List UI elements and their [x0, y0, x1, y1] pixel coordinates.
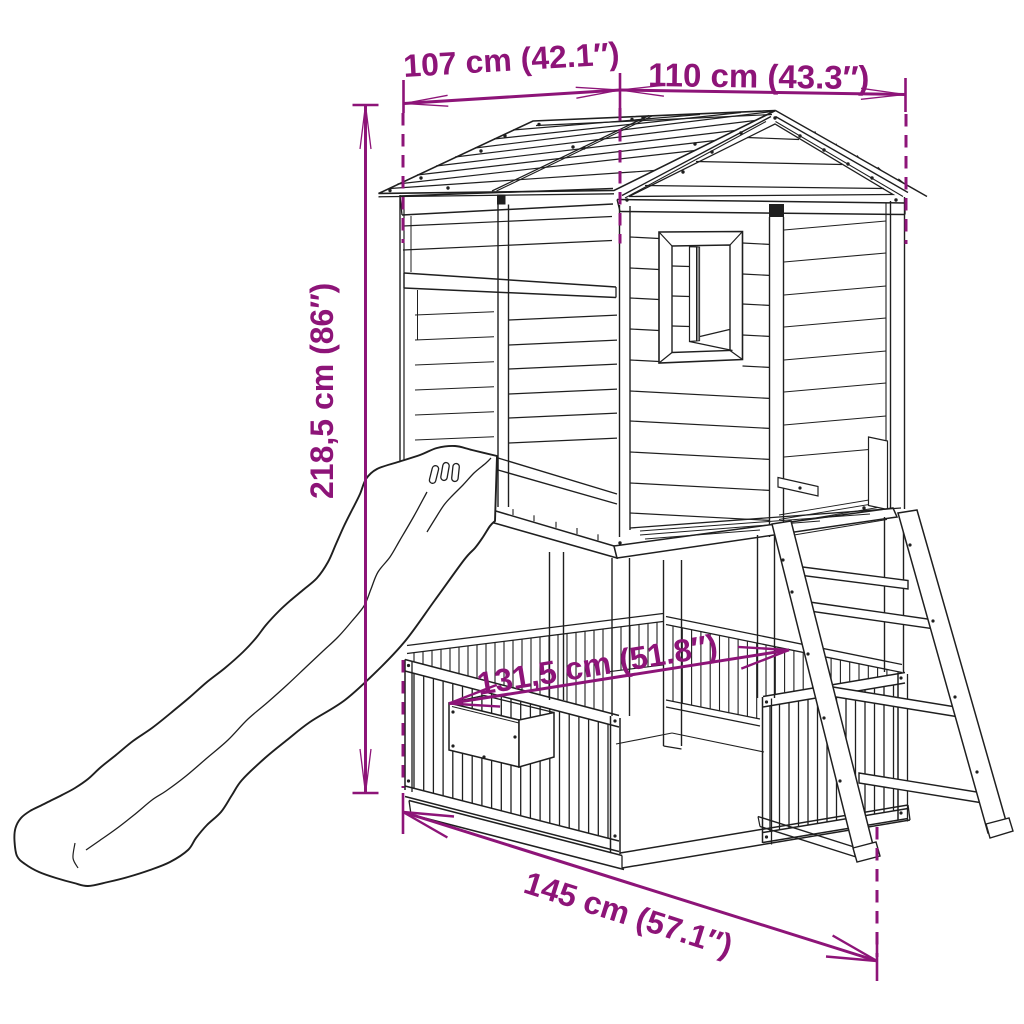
- svg-text:218,5 cm (86″): 218,5 cm (86″): [304, 283, 340, 499]
- svg-text:110 cm (43.3″): 110 cm (43.3″): [648, 56, 870, 96]
